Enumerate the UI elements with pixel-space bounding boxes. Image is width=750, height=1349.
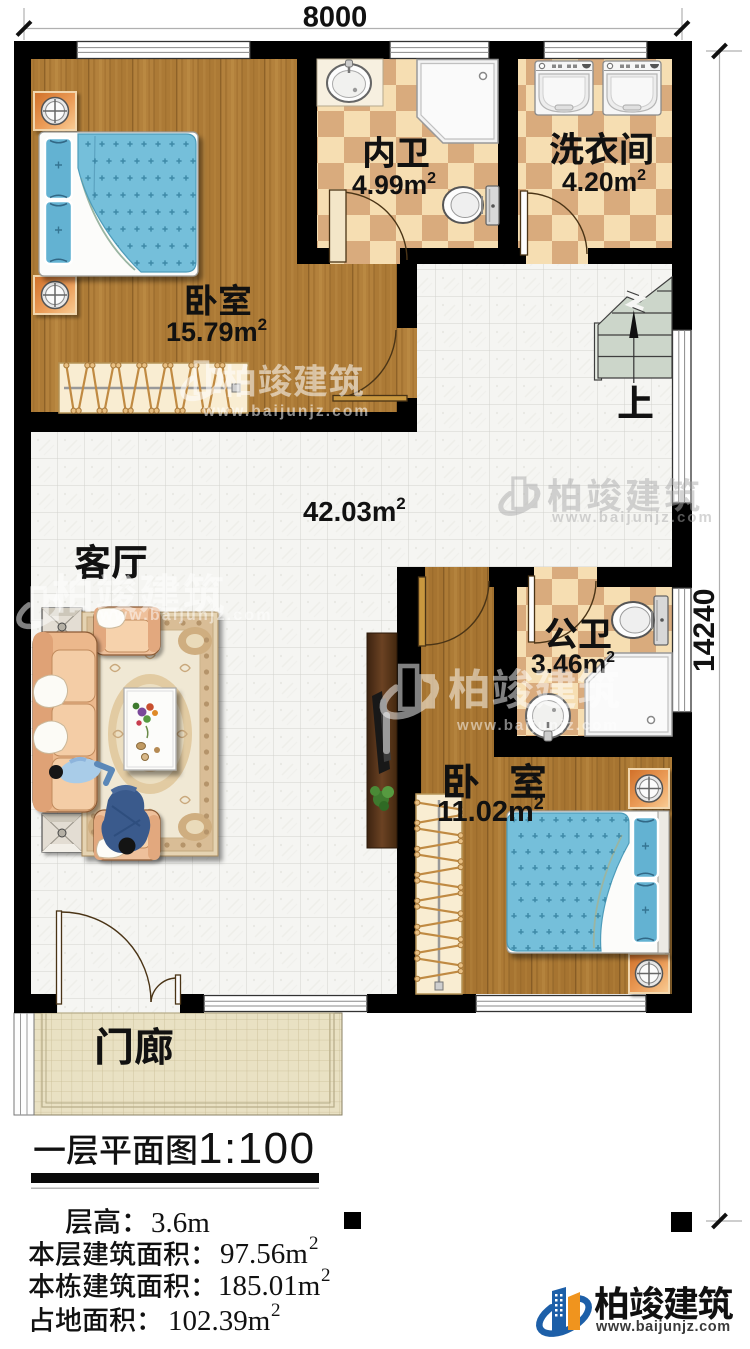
svg-text:4.99m2: 4.99m2	[352, 170, 436, 200]
svg-text:3.6m: 3.6m	[151, 1207, 210, 1239]
svg-text:97.56m: 97.56m	[220, 1238, 308, 1270]
svg-text:14240: 14240	[688, 589, 721, 672]
svg-text:185.01m: 185.01m	[218, 1270, 321, 1302]
svg-text:2: 2	[309, 1233, 319, 1254]
svg-text:www.baijunjz.com: www.baijunjz.com	[202, 403, 370, 420]
svg-text:8000: 8000	[303, 2, 368, 34]
svg-text:www.baijunjz.com: www.baijunjz.com	[595, 1319, 731, 1335]
svg-text:15.79m2: 15.79m2	[166, 315, 267, 347]
svg-text:102.39m: 102.39m	[168, 1305, 271, 1337]
svg-text:2: 2	[271, 1300, 281, 1321]
svg-text:www.baijunjz.com: www.baijunjz.com	[456, 717, 619, 734]
svg-text:4.20m2: 4.20m2	[562, 167, 646, 197]
svg-text:www.baijunjz.com: www.baijunjz.com	[99, 607, 273, 624]
svg-text:1:100: 1:100	[198, 1124, 316, 1173]
svg-text:42.03m2: 42.03m2	[303, 494, 406, 527]
svg-text:2: 2	[321, 1265, 331, 1286]
svg-text:www.baijunjz.com: www.baijunjz.com	[551, 509, 714, 526]
svg-text:11.02m2: 11.02m2	[437, 793, 544, 828]
